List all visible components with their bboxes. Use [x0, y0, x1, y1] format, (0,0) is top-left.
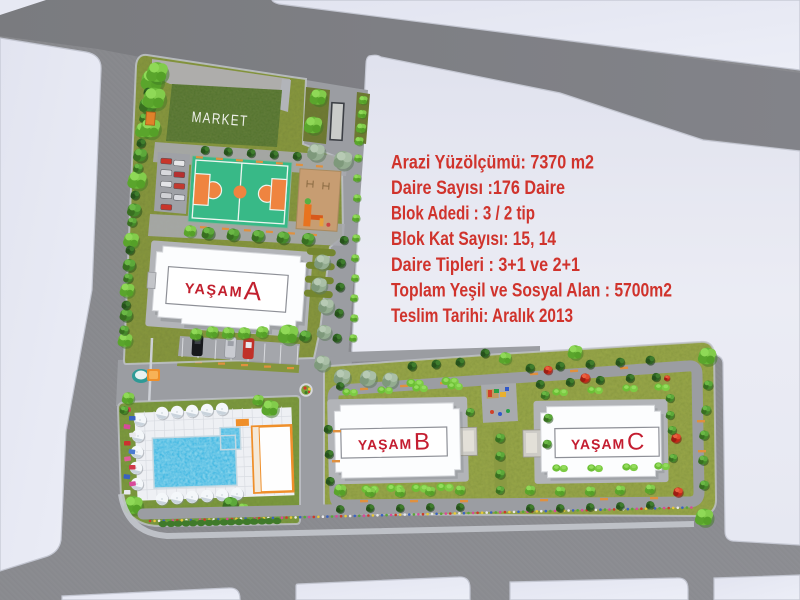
svg-text:YAŞAM: YAŞAM — [358, 436, 413, 453]
svg-text:A: A — [243, 275, 263, 306]
svg-text:YAŞAM: YAŞAM — [571, 436, 625, 453]
svg-text:Teslim Tarihi: Aralık 2013: Teslim Tarihi: Aralık 2013 — [391, 305, 573, 327]
svg-text:Daire Tipleri : 3+1 ve 2+1: Daire Tipleri : 3+1 ve 2+1 — [391, 254, 580, 276]
svg-text:Toplam Yeşil ve Sosyal Alan :: Toplam Yeşil ve Sosyal Alan : 5700m2 — [391, 280, 672, 302]
svg-text:Arazi Yüzölçümü: 7370 m2: Arazi Yüzölçümü: 7370 m2 — [391, 151, 594, 173]
svg-text:Blok Adedi : 3 / 2 tip: Blok Adedi : 3 / 2 tip — [391, 203, 535, 225]
svg-text:Daire Sayısı :176 Daire: Daire Sayısı :176 Daire — [391, 177, 565, 199]
svg-text:Blok Kat Sayısı: 15, 14: Blok Kat Sayısı: 15, 14 — [391, 228, 556, 250]
svg-text:C: C — [627, 428, 645, 455]
svg-text:B: B — [414, 428, 431, 455]
